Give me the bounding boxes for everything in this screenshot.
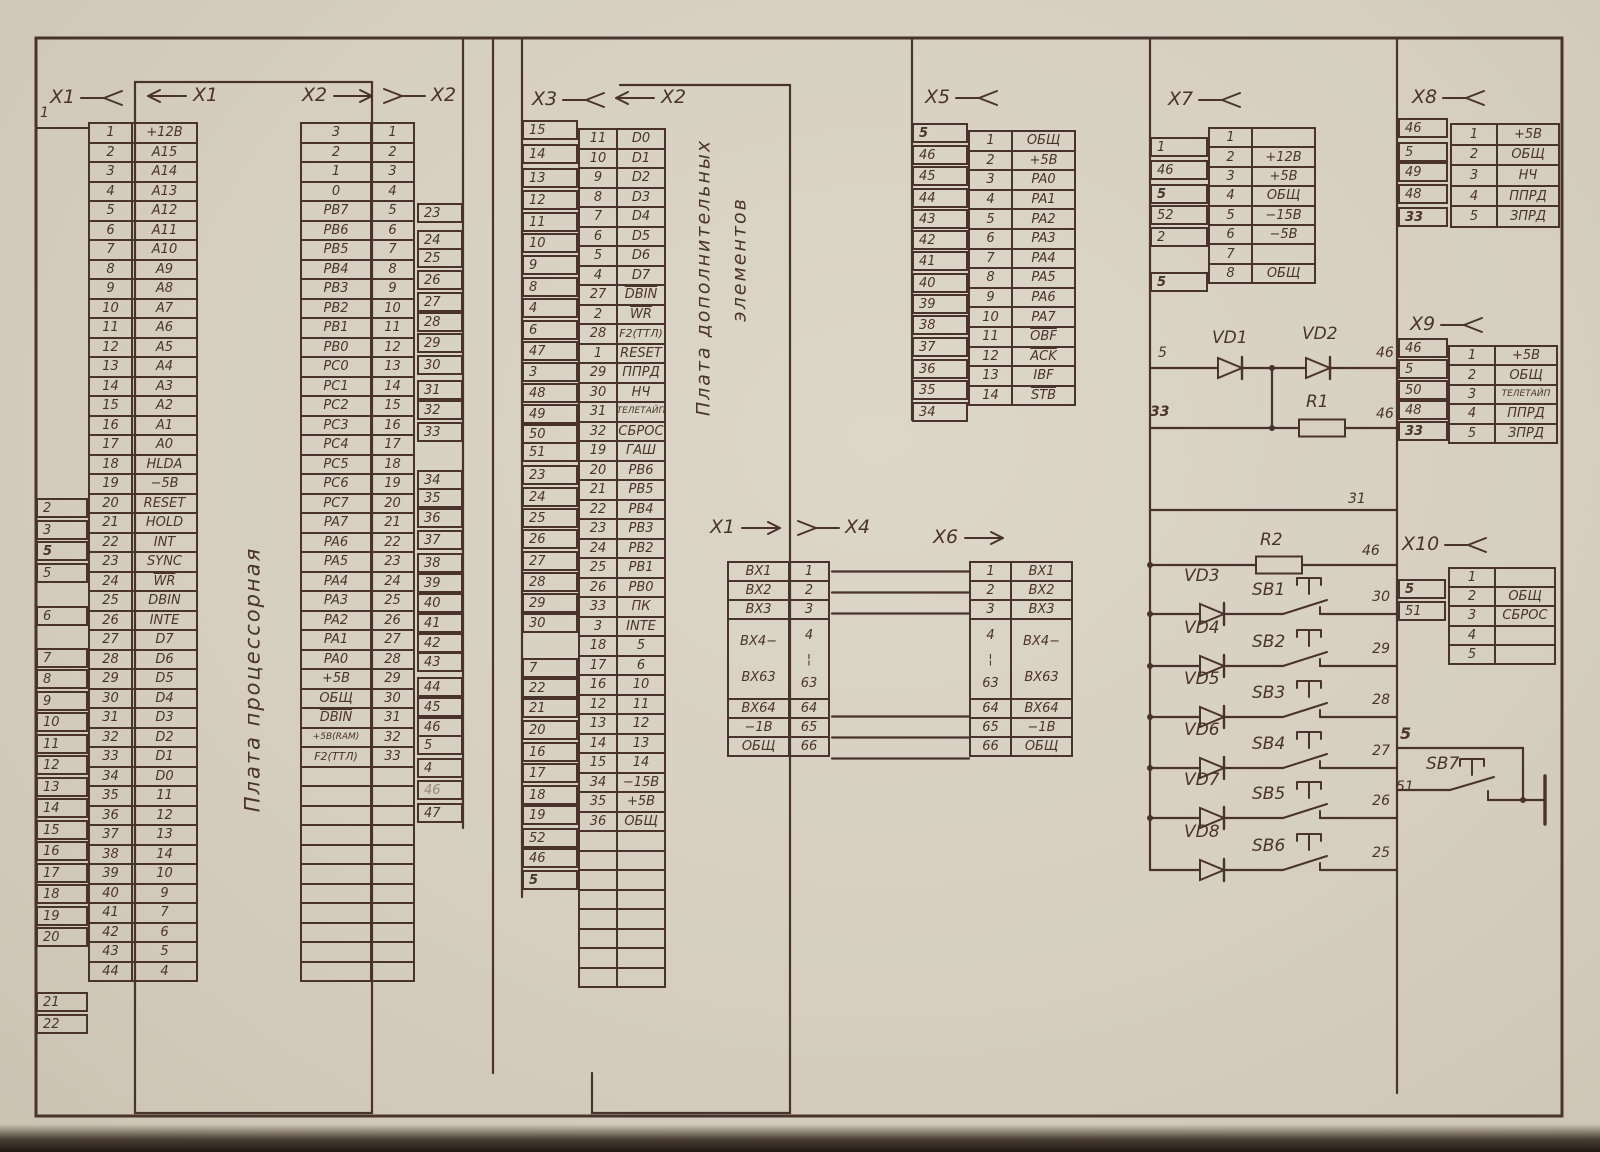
signal-cell: D7 [616,265,666,287]
cell-text: НЧ [1519,169,1538,182]
table-row: ОБЩ66 [727,736,830,757]
signal-cell: 11 [131,785,198,807]
cell-text: 6 [529,324,537,337]
table-row: 1610 [578,674,666,696]
table-row: 13IBF [968,365,1076,387]
cell-text: D0 [632,132,650,145]
edge-pin-x2: 46 [417,780,463,800]
arrow-left-icon [142,87,188,105]
cell-text: 22 [43,1018,60,1031]
board2-x2-title: X2 [661,88,686,107]
edge-pin-x2: 24 [417,230,463,250]
table-row: 8D3 [578,187,666,209]
signal-cell: 2 [788,580,830,601]
cell-text: 6 [388,224,396,237]
table-row: 4PA1 [968,189,1076,211]
table-row: 4ППРД [1448,403,1558,424]
signal-cell: ВХ2 [1010,580,1073,601]
signal-cell: 28 [370,649,415,671]
table-row: 9D2 [578,167,666,189]
signal-cell: ППРД [1494,403,1558,424]
edge-pin-x2: 28 [417,312,463,332]
cell-text: PC1 [323,380,348,393]
cell-text: 38 [919,319,936,332]
table-row: PB39 [300,278,415,300]
signal-cell: PA0 [1011,169,1076,191]
signal-cell: D2 [616,167,666,189]
pin-cell: 18 [578,635,618,657]
button-plunger-icon [1297,681,1321,697]
edge-pin-x3: 47 [522,341,578,361]
pin-cell: PB4 [300,259,372,281]
cell-text: D2 [632,171,650,184]
pin-cell: 3 [300,122,372,144]
cell-text: 30 [102,692,119,705]
signal-cell: −1В [1010,717,1073,738]
pin-cell: 25 [578,557,618,579]
pin-cell: 33 [88,746,133,768]
signal-cell: ВХ64 [1010,698,1073,719]
edge-pin-x1: 19 [36,906,88,926]
table-row: 3ВХ3 [969,599,1073,620]
edge-pin-x7: 46 [1150,160,1208,180]
cell-text: 35 [919,384,936,397]
pin-cell: PA7 [300,512,372,534]
table-row: 64ВХ64 [969,698,1073,719]
signal-cell: 26 [370,610,415,632]
cell-text: IBF [1033,369,1053,382]
edge-pin-x2: 44 [417,677,463,697]
table-row: 23PB3 [578,518,666,540]
switch-lever [1450,777,1494,790]
signal-cell: 33 [370,746,415,768]
cell-text: 46 [1157,164,1174,177]
cell-text: 39 [424,577,441,590]
table-row: PA424 [300,571,415,593]
table-row: 25DBIN [88,590,198,612]
arrow-right-icon [332,87,378,105]
signal-cell: 12 [370,337,415,359]
edge-pin-x2: 4 [417,758,463,778]
edge-pin-x1: 11 [36,734,88,754]
connector-x3-header: X3 [532,90,608,109]
cell-text: 17 [102,438,119,451]
cell-text: +5В [1514,128,1542,141]
table-row [578,928,666,950]
pin-cell [300,766,372,788]
edge-pin-x9: 50 [1398,380,1448,400]
cell-text: 10 [43,716,60,729]
cell-text: 22 [529,682,546,695]
signal-cell: 19 [370,473,415,495]
pin-cell: 21 [578,479,618,501]
cell-text: 33 [1405,211,1423,224]
cell-text: PA6 [324,536,348,549]
pin-cell: 6 [1208,224,1253,245]
wire-label-46-r1: 46 [1376,407,1394,421]
signal-cell: A11 [131,220,198,242]
edge-pin-x5: 34 [912,402,968,422]
cell-text: 5 [424,739,432,752]
pin-cell: 25 [88,590,133,612]
cell-text: 40 [919,277,936,290]
pin-cell: 1 [1450,123,1498,146]
cell-text: ВХ2 [1028,584,1054,597]
pin-cell: 2 [968,150,1013,172]
cell-text: PB7 [323,204,348,217]
table-row: 7 [1208,243,1316,264]
branch-pin-label: 30 [1358,590,1390,604]
table-row: 1+5В [1448,345,1558,366]
board1-x1-title: X1 [193,86,218,105]
sb7-wire-label-51: 51 [1396,780,1414,794]
cell-text: PA2 [1031,213,1055,226]
connector-x7-header: X7 [1168,90,1244,109]
pin-cell [300,805,372,827]
pin-cell: 3 [1450,164,1498,187]
pin-cell [578,928,618,950]
table-row: PB111 [300,317,415,339]
table-row: 4ОБЩ [1208,185,1316,206]
cell-text: 18 [384,458,401,471]
table-row: 65−1В [969,717,1073,738]
signal-cell [616,947,666,969]
cell-text: 52 [529,832,546,845]
pin-cell: 6 [88,220,133,242]
pin-cell: 35 [88,785,133,807]
cell-text: HOLD [146,516,183,529]
cell-text: 24 [424,234,441,247]
table-row: 2+12В [1208,146,1316,167]
pin-cell: 8 [578,187,618,209]
cell-text: 36 [102,809,119,822]
pin-cell: 32 [578,421,618,443]
cell-text: D5 [155,672,173,685]
pin-cell: 5 [1450,205,1498,228]
pin-cell: 4 [578,265,618,287]
signal-cell: 13 [370,356,415,378]
cell-text: 36 [919,363,936,376]
signal-cell: D2 [131,727,198,749]
cell-text: 32 [102,731,119,744]
diode-vd6-label: VD6 [1184,722,1220,739]
cell-text: 2 [1468,369,1476,382]
socket-fork-right-icon [80,89,126,107]
cell-text: 4 [388,185,396,198]
cell-text: 1 [594,347,602,360]
pin-cell: 5 [578,245,618,267]
cell-text: 43 [102,945,119,958]
signal-cell: A4 [131,356,198,378]
signal-cell: A2 [131,395,198,417]
pin-cell: 4¦63 [969,618,1012,700]
signal-cell: INTE [616,616,666,638]
table-row: 16A1 [88,415,198,437]
cell-text: 46 [919,149,936,162]
table-row: 25PB1 [578,557,666,579]
signal-cell: 9 [370,278,415,300]
cell-text: 31 [384,711,401,724]
cell-text: 13 [590,717,607,730]
table-row: 31ТЕЛЕТАЙП [578,401,666,423]
cell-text: 28 [102,653,119,666]
table-row: 2+5В [968,150,1076,172]
signal-cell: ТЕЛЕТАЙП [616,401,666,423]
button-plunger-icon [1297,630,1321,646]
signal-cell: 12 [131,805,198,827]
cell-text: PB6 [323,224,348,237]
cell-text: 12 [529,194,546,207]
signal-cell: PA7 [1011,306,1076,328]
cell-text: 15 [590,756,607,769]
edge-pin-x3: 29 [522,593,578,613]
cell-text: 9 [106,282,114,295]
pin-cell: −1В [727,717,790,738]
signal-cell: −5В [1251,224,1316,245]
table-row [578,889,666,911]
cell-text: 64 [801,702,818,715]
edge-pin-x3: 15 [522,120,578,140]
cell-text: 30 [590,386,607,399]
signal-cell: +5В [1251,166,1316,187]
edge-pin-x5: 5 [912,123,968,143]
table-row: 27DBIN [578,284,666,306]
signal-cell: −5В [131,473,198,495]
cell-text: 46 [424,721,441,734]
edge-pin-x3: 3 [522,362,578,382]
table-row [300,863,415,885]
cell-text: −15В [1265,209,1301,222]
cell-text: 39 [102,867,119,880]
signal-cell: 8 [370,259,415,281]
cell-text: 42 [919,234,936,247]
cell-text: 49 [529,408,546,421]
signal-cell: −15В [1251,205,1316,226]
cell-text: 3 [388,165,396,178]
signal-cell: 25 [370,590,415,612]
cell-text: 7 [1226,248,1234,261]
pin-cell: 16 [578,674,618,696]
cell-text: 20 [384,497,401,510]
cell-text: 27 [529,555,546,568]
cell-text: 10 [529,237,546,250]
cell-text: 8 [106,263,114,276]
table-row: 3+5В [1208,166,1316,187]
signal-cell [616,830,666,852]
cell-text: 9 [388,282,396,295]
cell-text: D4 [632,210,650,223]
cell-text: 38 [424,557,441,570]
cell-text: ОБЩ [742,740,775,753]
cell-text: ОБЩ [1267,189,1300,202]
table-row: 22INT [88,532,198,554]
resistor-icon [1256,557,1302,574]
cell-text: 25 [424,252,441,265]
table-row: 30D4 [88,688,198,710]
table-row: 1+5В [1450,123,1560,146]
cell-text: D1 [632,152,650,165]
pin-cell: 44 [88,961,133,983]
cell-text: ВХ64 [741,702,775,715]
cell-text: OBF [1030,330,1057,343]
pin-cell: PB7 [300,200,372,222]
table-row: 3713 [88,824,198,846]
signal-cell: 23 [370,551,415,573]
pin-cell [300,922,372,944]
pin-cell: 27 [578,284,618,306]
edge-pin-x5: 40 [912,273,968,293]
edge-pin-x3: 26 [522,529,578,549]
table-row: 8A9 [88,259,198,281]
diode-vd7-label: VD7 [1184,772,1220,789]
cell-text: 29 [384,672,401,685]
cell-text: 44 [424,681,441,694]
edge-pin-x3: 46 [522,848,578,868]
pin-cell: 14 [968,385,1013,407]
cell-text: 22 [102,536,119,549]
pin-cell: 2 [1450,144,1498,167]
edge-pin-x1: 8 [36,669,88,689]
edge-pin-x2: 37 [417,530,463,550]
pin-cell: 18 [88,454,133,476]
table-row: 11A6 [88,317,198,339]
edge-pin-x2: 40 [417,593,463,613]
table-row: 4¦63ВХ4−ВХ63 [969,618,1073,700]
cell-text: WR [154,575,176,588]
signal-cell: A15 [131,142,198,164]
cell-text: 10 [102,302,119,315]
cell-text: DBIN [320,711,353,724]
signal-cell: D3 [131,707,198,729]
cell-text: 19 [102,477,119,490]
cell-text: F2(ТТЛ) [619,328,663,339]
cell-text: 66 [982,740,999,753]
table-row: 20RESET [88,493,198,515]
junction-dot [1269,365,1275,371]
pin-cell: 8 [968,267,1013,289]
pin-cell: 7 [578,206,618,228]
pin-cell: PA0 [300,649,372,671]
junction-dot [1147,815,1153,821]
cell-text: D4 [155,692,173,705]
table-row: 2WR [578,304,666,326]
board1-x1-header: X1 [142,86,218,105]
signal-cell: ППРД [1496,185,1560,208]
cell-text: 64 [982,702,999,715]
cell-text: 36 [424,512,441,525]
cell-text: 28 [590,327,607,340]
table-row: PA226 [300,610,415,632]
cell-text: 21 [102,516,119,529]
signal-cell: WR [131,571,198,593]
connector-x1-title: X1 [50,88,75,107]
sb7-wire-label-5: 5 [1400,726,1411,742]
signal-cell: A3 [131,376,198,398]
pin-cell: 23 [578,518,618,540]
edge-pin-x9: 5 [1398,359,1448,379]
signal-cell: 4 [131,961,198,983]
connector-x7-table: 12+12В3+5В4ОБЩ5−15В6−5В78ОБЩ [1208,127,1316,284]
cell-text: A14 [152,165,177,178]
cell-text: 10 [384,302,401,315]
table-row: 8ОБЩ [1208,263,1316,284]
table-row: 13A4 [88,356,198,378]
table-row: ВХ22 [727,580,830,601]
cell-text: 3 [529,366,537,379]
table-row: 1ВХ1 [969,561,1073,582]
edge-pin-x1: 14 [36,798,88,818]
cell-text: 16 [529,746,546,759]
pin-cell: 11 [968,326,1013,348]
table-row: 28D6 [88,649,198,671]
table-row: 435 [88,941,198,963]
cell-text: 11 [982,330,999,343]
signal-cell: ПК [616,596,666,618]
cell-text: 14 [156,848,173,861]
cell-text: 2 [1157,231,1165,244]
table-row: 23SYNC [88,551,198,573]
table-row: 34D0 [88,766,198,788]
signal-cell: A5 [131,337,198,359]
cell-text: 23 [384,555,401,568]
cell-text: 2 [1468,590,1476,603]
cell-text: 6 [43,610,51,623]
junction-dot [1520,797,1526,803]
cell-text: RESET [144,497,186,510]
cell-text: DBIN [148,594,181,607]
table-row: 3СБРОС [1448,605,1556,626]
pin-cell: 3 [1448,605,1496,626]
table-row: 33ПК [578,596,666,618]
cell-text: 1 [332,165,340,178]
cell-text: ACK [1030,350,1057,363]
cell-text: 14 [529,148,546,161]
table-row [578,947,666,969]
pin-cell: 20 [88,493,133,515]
table-row: 15A2 [88,395,198,417]
board1-x2-title: X2 [302,86,327,105]
connector-x2-title: X2 [431,86,456,105]
pin-cell [578,830,618,852]
edge-pin-x2: 23 [417,203,463,223]
pin-cell: PC1 [300,376,372,398]
pin-cell: PC5 [300,454,372,476]
cell-text: 5 [1468,427,1476,440]
signal-cell: 6 [616,655,666,677]
wire-label-31: 31 [1348,492,1366,506]
cell-text: ОБЩ [1267,267,1300,280]
cell-text: 35 [102,789,119,802]
pin-cell: 34 [88,766,133,788]
table-row: 18HLDA [88,454,198,476]
cell-text: PC2 [323,399,348,412]
signal-cell: 3 [788,599,830,620]
cell-text: 49 [1405,166,1422,179]
pin-cell [578,889,618,911]
table-row: 3INTE [578,616,666,638]
signal-cell: D1 [616,148,666,170]
cell-text: 50 [529,428,546,441]
cell-text: −15В [623,776,659,789]
cell-text: 1 [1468,349,1476,362]
cell-text: 28 [529,576,546,589]
cell-text: 6 [1226,228,1234,241]
signal-cell [370,883,415,905]
table-row: PB48 [300,259,415,281]
signal-cell: PA3 [1011,228,1076,250]
cell-text: 20 [43,931,60,944]
cell-text: 51 [529,446,546,459]
